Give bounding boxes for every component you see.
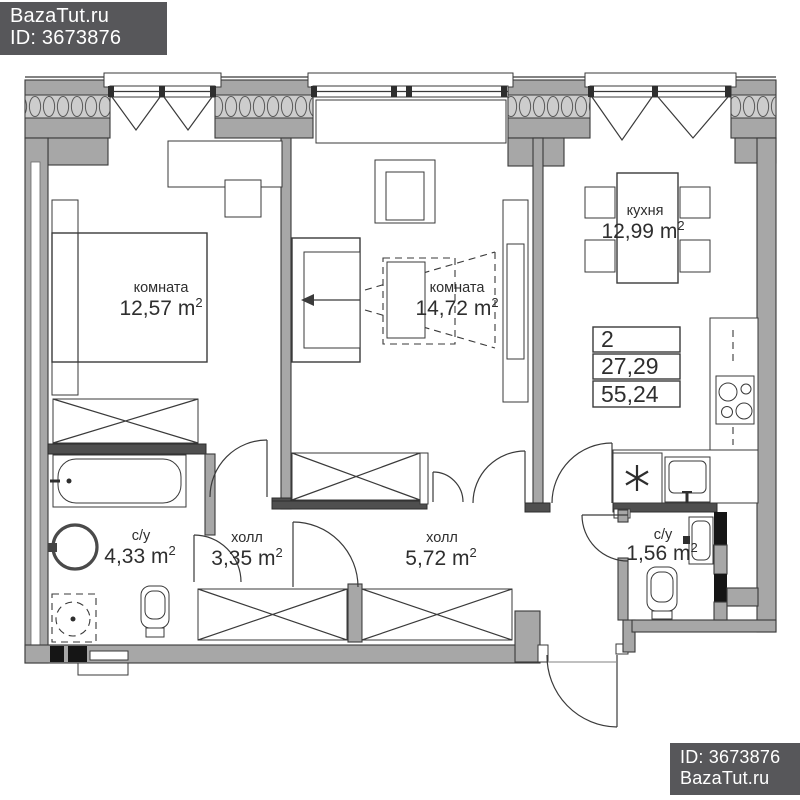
round-sink xyxy=(48,525,97,569)
kitchen-label: кухня xyxy=(627,203,664,219)
bathtub xyxy=(50,455,186,507)
chair xyxy=(680,187,710,218)
door-room2-small-leaf xyxy=(433,472,463,502)
entrance-door xyxy=(547,655,617,727)
nightstand xyxy=(52,200,78,233)
hall1-area: 3,35 m2 xyxy=(211,545,282,570)
toilet xyxy=(141,586,169,637)
toilet xyxy=(647,567,677,619)
wardrobe xyxy=(198,589,347,640)
chair xyxy=(585,240,615,272)
fridge xyxy=(613,453,662,503)
bathroom2-area: 1,56 m2 xyxy=(626,540,697,565)
wardrobe xyxy=(362,589,512,640)
hall1-label: холл xyxy=(231,530,263,546)
bathroom1-area: 4,33 m2 xyxy=(104,543,175,568)
room2-furniture xyxy=(292,160,528,504)
kitchen-area: 12,99 m2 xyxy=(601,218,684,243)
listing-id: ID: 3673876 xyxy=(680,747,792,768)
site-name: BazaTut.ru xyxy=(10,5,155,27)
room1-label: комната xyxy=(134,280,190,296)
site-name: BazaTut.ru xyxy=(680,768,792,789)
bathroom2-label: с/у xyxy=(654,527,673,543)
chair xyxy=(585,187,615,218)
floorplan-page: 2 27,29 55,24 xyxy=(0,0,800,800)
summary-living-area: 27,29 xyxy=(601,353,659,379)
window-room2 xyxy=(308,73,513,143)
watermark-top-left: BazaTut.ru ID: 3673876 xyxy=(0,2,167,55)
room1-area: 12,57 m2 xyxy=(119,295,202,320)
wardrobe xyxy=(292,453,428,504)
watermark-bottom-right: ID: 3673876 BazaTut.ru xyxy=(670,743,800,795)
door-hall-connector xyxy=(293,522,358,587)
chair xyxy=(680,240,710,272)
floor-plan: 2 27,29 55,24 xyxy=(0,0,800,800)
hall2-label: холл xyxy=(426,530,458,546)
listing-id: ID: 3673876 xyxy=(10,27,155,49)
nightstand xyxy=(52,362,78,395)
room2-area: 14,72 m2 xyxy=(415,295,498,320)
window-sill-panel xyxy=(316,100,506,143)
door-room2 xyxy=(473,451,525,503)
washing-machine xyxy=(52,594,96,642)
window-kitchen xyxy=(585,73,736,140)
bathroom1-label: с/у xyxy=(132,528,151,544)
desk-chair xyxy=(225,180,261,217)
stove xyxy=(716,376,754,424)
door-room1 xyxy=(210,440,267,497)
window-room1 xyxy=(104,73,221,130)
summary-rooms: 2 xyxy=(601,326,614,352)
wardrobe xyxy=(53,399,198,443)
summary-table: 2 27,29 55,24 xyxy=(593,326,680,407)
tv-cabinet xyxy=(503,200,528,402)
hall2-area: 5,72 m2 xyxy=(405,545,476,570)
door-kitchen xyxy=(552,443,612,503)
kitchen-sink xyxy=(665,457,710,503)
summary-total-area: 55,24 xyxy=(601,381,659,407)
room2-label: комната xyxy=(430,280,486,296)
